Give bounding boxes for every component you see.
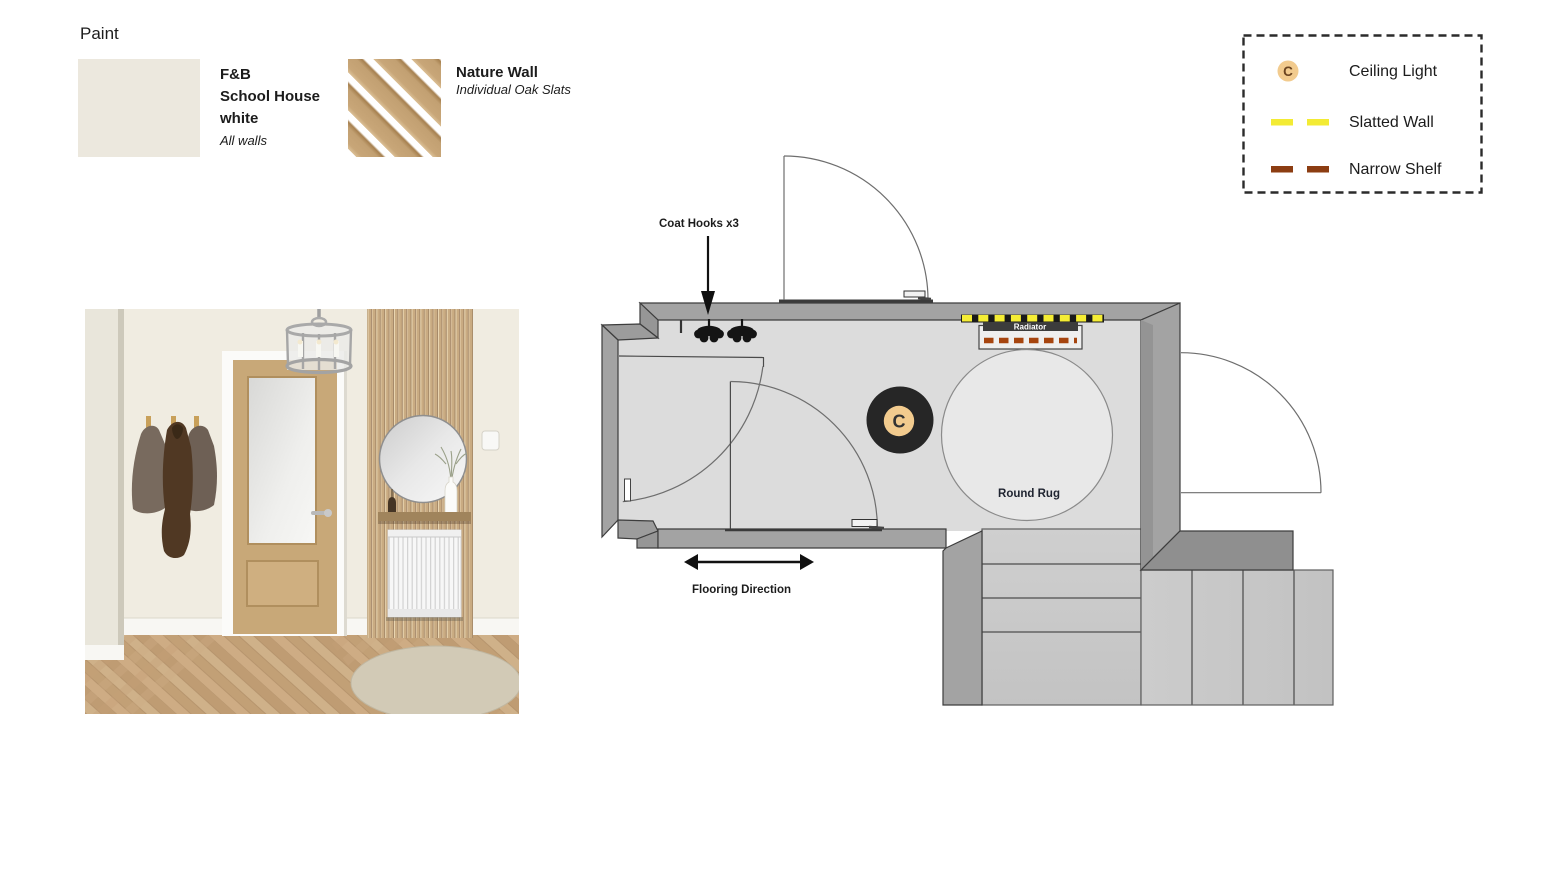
svg-text:Radiator: Radiator [1014, 323, 1046, 332]
svg-text:C: C [1283, 64, 1293, 79]
svg-text:C: C [893, 412, 906, 432]
svg-text:Round Rug: Round Rug [998, 488, 1060, 500]
